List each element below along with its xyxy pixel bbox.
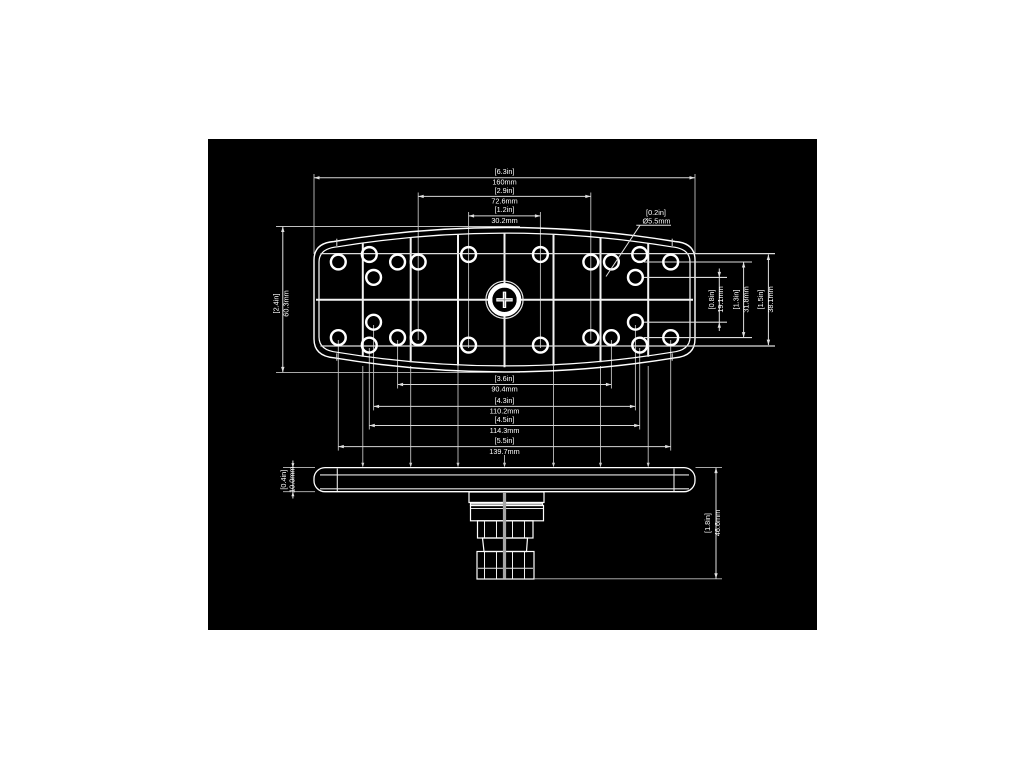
svg-text:[1.2in]: [1.2in] [495,205,515,214]
svg-text:60.3mm: 60.3mm [281,290,290,316]
svg-text:[2.9in]: [2.9in] [495,186,515,195]
svg-text:72.6mm: 72.6mm [491,196,517,205]
svg-text:114.3mm: 114.3mm [490,426,520,435]
svg-text:[4.5in]: [4.5in] [495,415,515,424]
svg-text:31.8mm: 31.8mm [741,286,750,312]
svg-text:19.1mm: 19.1mm [716,286,725,312]
svg-text:30.2mm: 30.2mm [491,216,517,225]
svg-text:[3.6in]: [3.6in] [495,374,515,383]
svg-text:10.0mm: 10.0mm [288,467,297,493]
svg-text:[1.8in]: [1.8in] [703,513,712,533]
svg-text:139.7mm: 139.7mm [489,447,519,456]
svg-text:[0.8in]: [0.8in] [707,290,716,310]
svg-text:[2.4in]: [2.4in] [272,294,281,314]
svg-text:[4.3in]: [4.3in] [495,396,515,405]
svg-text:[1.3in]: [1.3in] [731,290,740,310]
svg-text:[6.3in]: [6.3in] [495,167,515,176]
svg-text:[5.5in]: [5.5in] [495,436,515,445]
svg-text:90.4mm: 90.4mm [491,385,517,394]
svg-text:Ø5.5mm: Ø5.5mm [643,216,671,225]
svg-text:46.6mm: 46.6mm [713,510,722,536]
svg-text:38.1mm: 38.1mm [766,286,775,312]
svg-text:[1.5in]: [1.5in] [756,290,765,310]
